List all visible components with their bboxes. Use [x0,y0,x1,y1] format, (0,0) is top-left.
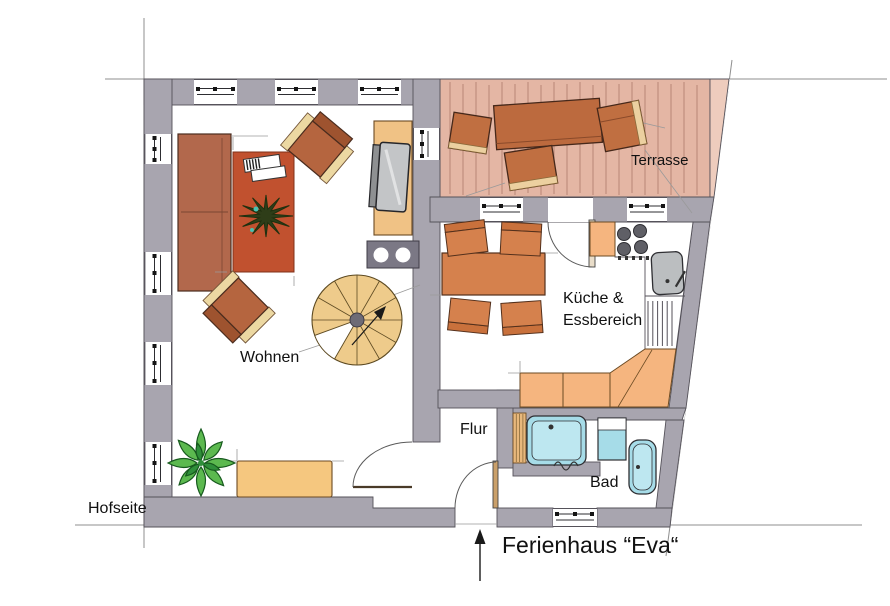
terrace-chair [448,112,491,154]
sink-icon [651,251,686,295]
window-symbol [358,79,401,105]
terrace-deck-light [710,79,729,197]
dining-chair [448,298,491,334]
label-terrace: Terrasse [631,152,689,169]
label-kitchen-line2: Essbereich [563,312,642,329]
label-kitchen-line1: Küche & [563,290,624,307]
window-symbol [627,197,667,222]
terrace-table [494,98,603,149]
shower [527,416,586,470]
floorplan-drawing: Wohnen Küche & Essbereich Flur Bad Terra… [0,0,890,606]
window-symbol [553,508,597,527]
window-symbol [145,442,172,485]
bathtub [629,440,656,494]
window-symbol [145,134,172,164]
window-symbol [194,79,237,105]
radiator [513,413,526,463]
floorplan-canvas: Wohnen Küche & Essbereich Flur Bad Terra… [0,0,890,606]
label-courtyard-side: Hofseite [88,500,147,517]
plan-title: Ferienhaus “Eva“ [502,532,678,558]
title-block: Ferienhaus “Eva“ [475,529,679,581]
terrace-chair [504,145,557,190]
window-symbol [145,342,172,385]
window-symbol [480,197,523,222]
tv [369,142,411,212]
wall-flur-top [438,390,523,408]
wood-stove [367,241,419,268]
dining-table [430,253,558,295]
dining-chair [444,220,488,257]
dining-chair [500,222,542,256]
label-living: Wohnen [240,349,299,366]
label-bath: Bad [590,474,618,491]
tv-cabinet [369,121,412,235]
window-symbol [145,252,172,295]
entrance-arrow-icon [475,529,486,581]
wall-bottom-right [597,508,672,527]
dining-chair [501,301,543,336]
label-hall: Flur [460,421,488,438]
terrace-chair [597,100,647,151]
washbasin [598,418,626,460]
kitchen-cabinet [590,222,615,256]
window-symbol [275,79,318,105]
wall-bottom-mid [497,508,553,527]
window-symbol [413,128,440,160]
